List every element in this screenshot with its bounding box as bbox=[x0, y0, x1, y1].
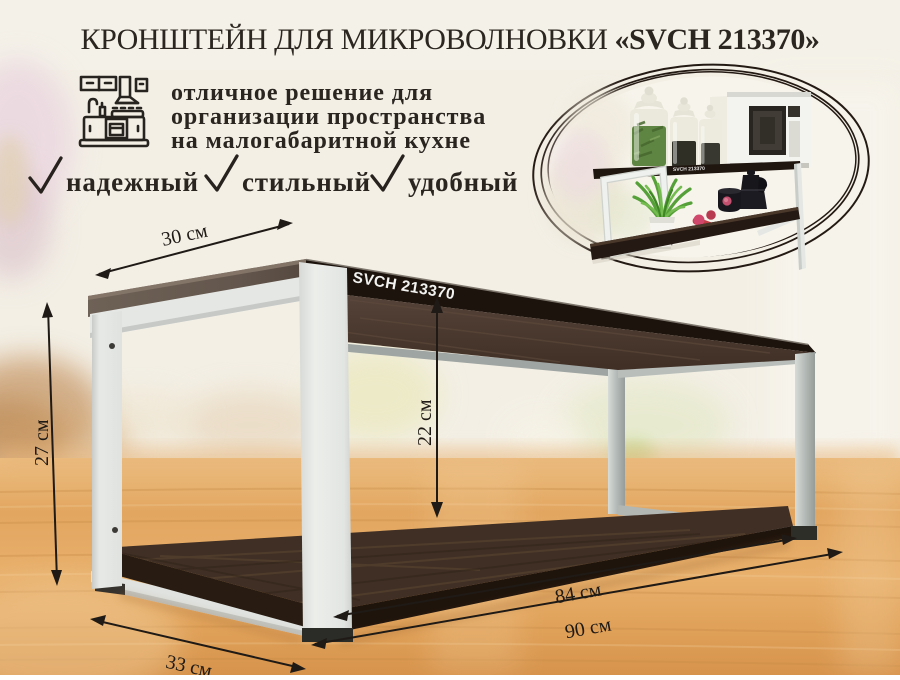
svg-text:отличное решение для: отличное решение для bbox=[171, 80, 433, 106]
svg-text:стильный: стильный bbox=[242, 167, 371, 197]
svg-text:надежный: надежный bbox=[66, 167, 199, 197]
svg-text:организации пространства: организации пространства bbox=[171, 104, 486, 130]
svg-text:на малогабаритной кухне: на малогабаритной кухне bbox=[171, 128, 471, 154]
svg-text:SVCH 213370: SVCH 213370 bbox=[673, 166, 705, 173]
svg-text:удобный: удобный bbox=[408, 167, 518, 197]
svg-text:22 см: 22 см bbox=[414, 399, 436, 446]
svg-text:27 см: 27 см bbox=[31, 419, 53, 466]
svg-text:КРОНШТЕЙН ДЛЯ МИКРОВОЛНОВКИ «S: КРОНШТЕЙН ДЛЯ МИКРОВОЛНОВКИ «SVCH 213370… bbox=[81, 23, 820, 56]
